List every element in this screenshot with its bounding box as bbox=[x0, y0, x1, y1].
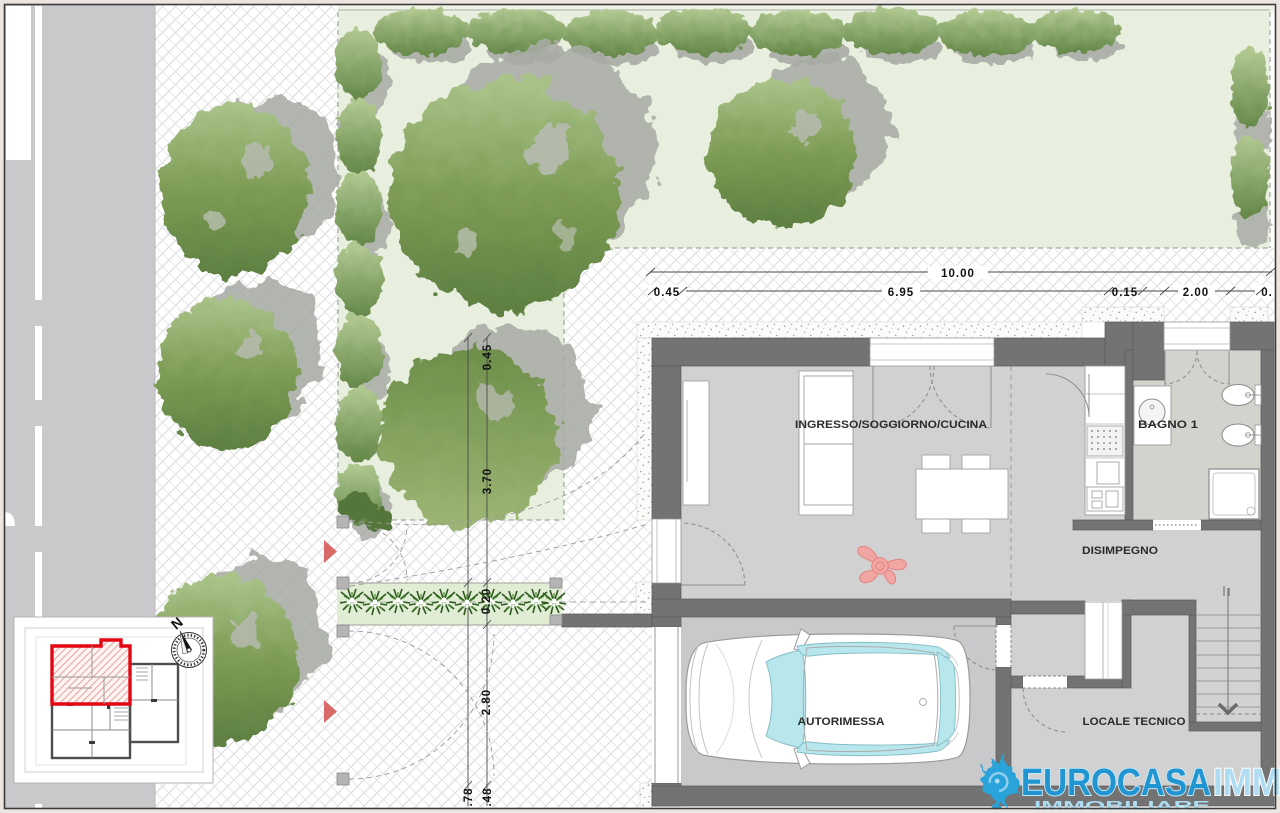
svg-text:0.45: 0.45 bbox=[482, 344, 494, 370]
svg-text:0.45: 0.45 bbox=[654, 287, 680, 299]
svg-text:EUROCASA: EUROCASA bbox=[1021, 762, 1211, 804]
svg-text:DISIMPEGNO: DISIMPEGNO bbox=[1082, 545, 1158, 557]
svg-text:.78: .78 bbox=[463, 788, 475, 807]
svg-text:2.80: 2.80 bbox=[481, 689, 493, 715]
svg-text:0.20: 0.20 bbox=[481, 588, 493, 614]
svg-text:INGRESSO/SOGGIORNO/CUCINA: INGRESSO/SOGGIORNO/CUCINA bbox=[795, 419, 987, 431]
svg-text:IMMOBILIARE: IMMOBILIARE bbox=[1034, 799, 1210, 813]
svg-text:AUTORIMESSA: AUTORIMESSA bbox=[798, 716, 885, 728]
svg-text:BAGNO 1: BAGNO 1 bbox=[1138, 419, 1198, 431]
svg-text:0.: 0. bbox=[1261, 287, 1273, 299]
svg-text:6.95: 6.95 bbox=[888, 287, 914, 299]
svg-text:.48: .48 bbox=[482, 788, 494, 807]
svg-text:IMM: IMM bbox=[1213, 762, 1280, 804]
svg-text:3.70: 3.70 bbox=[482, 468, 494, 494]
svg-text:0.15: 0.15 bbox=[1112, 287, 1138, 299]
svg-text:2.00: 2.00 bbox=[1183, 287, 1209, 299]
svg-text:LOCALE TECNICO: LOCALE TECNICO bbox=[1083, 716, 1186, 728]
svg-text:10.00: 10.00 bbox=[941, 268, 975, 280]
